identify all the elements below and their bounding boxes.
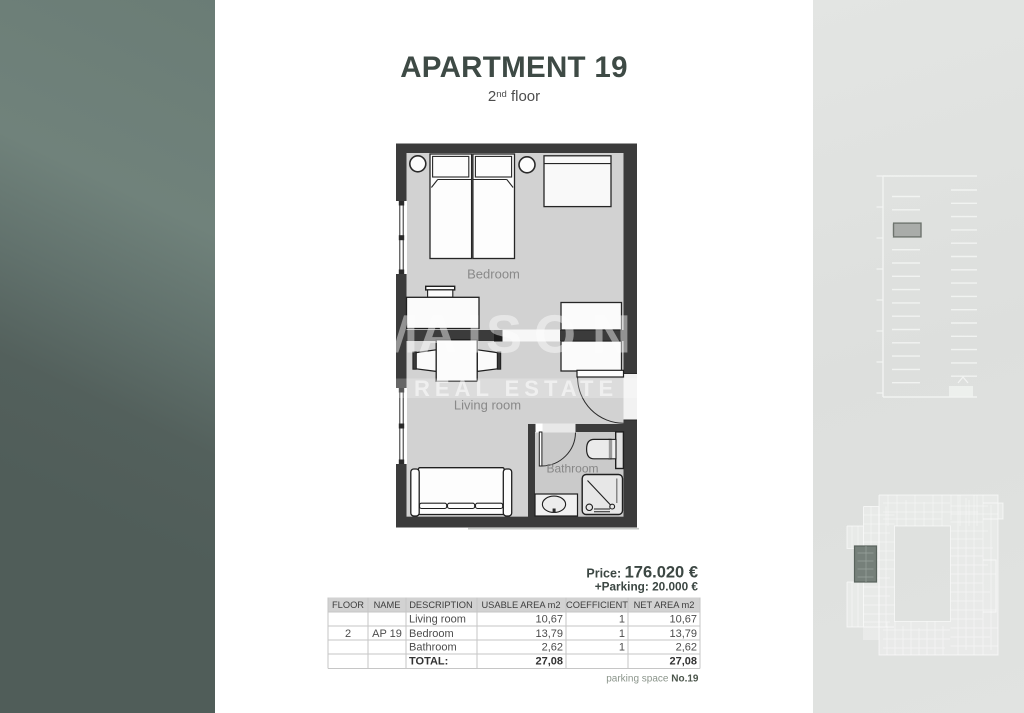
svg-text:2,62: 2,62	[542, 642, 563, 654]
svg-text:27,08: 27,08	[535, 656, 563, 668]
svg-text:2nd floor: 2nd floor	[488, 88, 540, 105]
svg-text:NET AREA m2: NET AREA m2	[634, 600, 695, 610]
svg-text:MAISON: MAISON	[373, 305, 631, 365]
svg-text:FLOOR: FLOOR	[332, 600, 364, 610]
svg-text:TOTAL:: TOTAL:	[409, 656, 448, 668]
svg-text:Bathroom: Bathroom	[409, 642, 457, 654]
svg-text:COEFFICIENT: COEFFICIENT	[566, 600, 628, 610]
svg-text:DESCRIPTION: DESCRIPTION	[409, 600, 473, 610]
svg-text:1: 1	[619, 628, 625, 640]
svg-text:Bedroom: Bedroom	[467, 267, 520, 282]
svg-text:APARTMENT 19: APARTMENT 19	[400, 51, 628, 84]
svg-text:USABLE AREA m2: USABLE AREA m2	[481, 600, 560, 610]
svg-text:1: 1	[619, 642, 625, 654]
svg-text:Living room: Living room	[409, 614, 466, 626]
svg-text:1: 1	[619, 614, 625, 626]
svg-text:+Parking: 20.000 €: +Parking: 20.000 €	[595, 580, 699, 594]
svg-text:2,62: 2,62	[676, 642, 697, 654]
svg-text:13,79: 13,79	[669, 628, 697, 640]
svg-text:Bathroom: Bathroom	[546, 462, 598, 476]
svg-text:REAL ESTATE: REAL ESTATE	[414, 376, 618, 401]
svg-text:10,67: 10,67	[669, 614, 697, 626]
svg-text:13,79: 13,79	[535, 628, 563, 640]
svg-text:10,67: 10,67	[535, 614, 563, 626]
svg-text:Bedroom: Bedroom	[409, 628, 454, 640]
svg-text:NAME: NAME	[374, 600, 401, 610]
svg-text:AP 19: AP 19	[372, 628, 402, 640]
svg-text:2: 2	[345, 628, 351, 640]
svg-text:27,08: 27,08	[669, 656, 697, 668]
svg-text:parking space No.19: parking space No.19	[606, 674, 699, 685]
